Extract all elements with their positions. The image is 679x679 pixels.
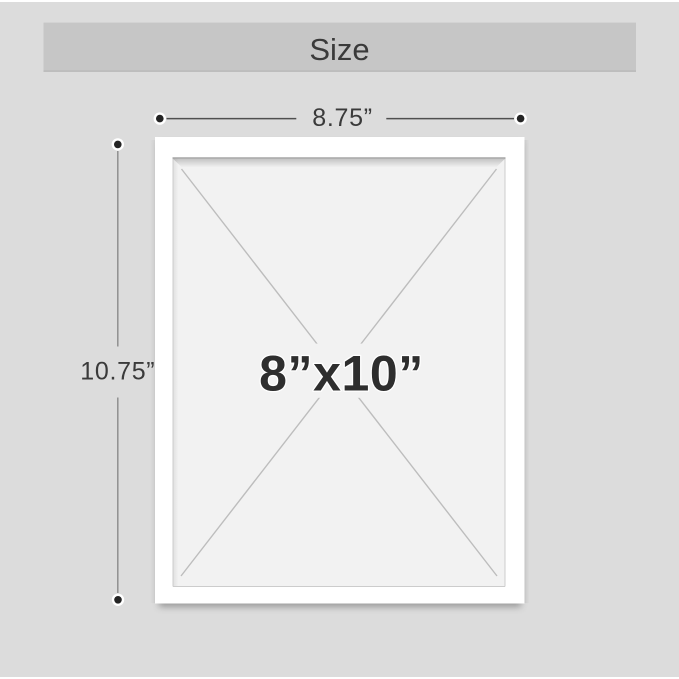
svg-text:Size: Size xyxy=(309,32,369,67)
svg-text:8.75”: 8.75” xyxy=(312,104,372,132)
svg-text:8”x10”: 8”x10” xyxy=(259,346,424,402)
svg-text:10.75”: 10.75” xyxy=(80,358,155,386)
